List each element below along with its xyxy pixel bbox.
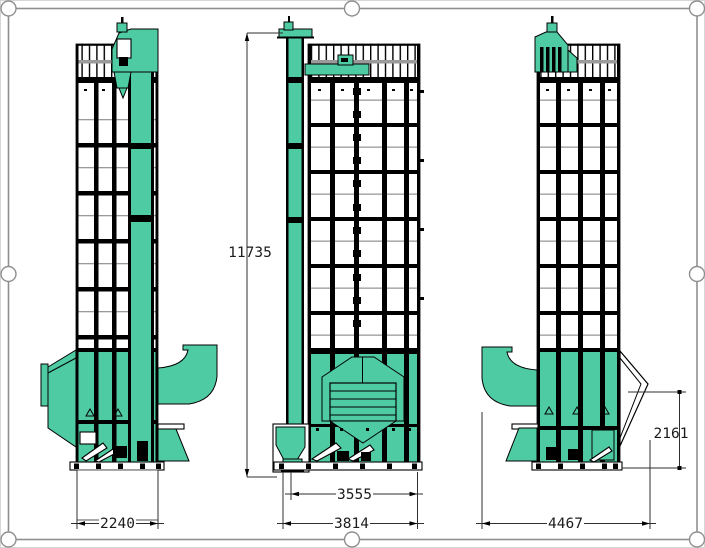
dim-front-overall-width-label: 3814	[334, 516, 369, 532]
dim-left-view-width-label: 2240	[100, 516, 135, 532]
foundation-pedestal	[77, 470, 158, 520]
dim-base-height-label: 2161	[654, 426, 689, 442]
tower-grid	[537, 44, 620, 464]
base-plate	[274, 462, 422, 470]
front-view	[273, 16, 424, 472]
dim-right-view-width-label: 4467	[548, 516, 583, 532]
bucket-elevator	[128, 44, 154, 462]
base-plate	[70, 462, 164, 470]
dryer-three-view-drawing: 11735 2240 3555 3814	[0, 0, 705, 548]
base-plate	[532, 462, 622, 470]
dim-front-inner-width-label: 3555	[337, 487, 372, 503]
drawing-sheet: 11735 2240 3555 3814	[0, 0, 705, 548]
dim-overall-height-label: 11735	[228, 245, 272, 261]
